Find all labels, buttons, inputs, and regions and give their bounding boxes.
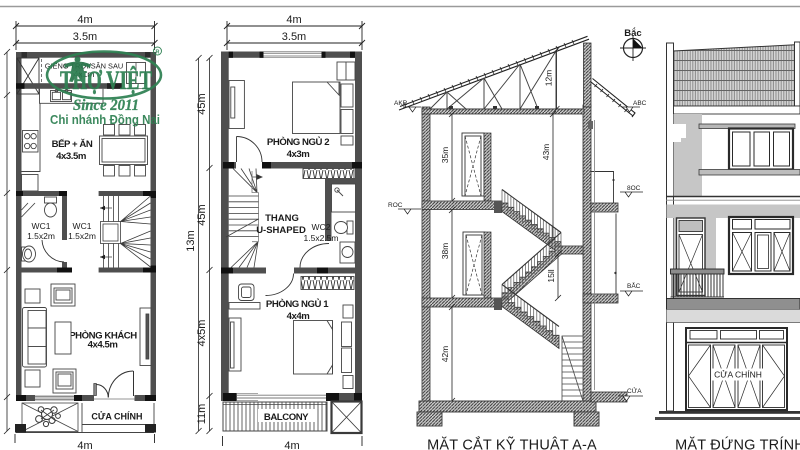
svg-text:3.5m: 3.5m [282, 31, 306, 43]
svg-text:1.5x2m: 1.5x2m [27, 231, 55, 241]
svg-text:4x4.5m: 4x4.5m [88, 340, 118, 351]
svg-text:PHÒNG NGỦ 2: PHÒNG NGỦ 2 [267, 136, 329, 148]
svg-text:4m: 4m [284, 440, 299, 450]
svg-text:BẮC: BẮC [627, 281, 641, 290]
svg-text:PHÒNG NGỦ 1: PHÒNG NGỦ 1 [266, 298, 329, 310]
svg-text:WC2: WC2 [312, 222, 331, 232]
svg-text:3.5m: 3.5m [73, 31, 97, 43]
svg-text:4x3m: 4x3m [287, 149, 310, 160]
svg-text:1.5x2.5m: 1.5x2.5m [304, 233, 339, 243]
svg-text:CỬA: CỬA [627, 386, 642, 395]
svg-text:ABC: ABC [633, 100, 647, 107]
svg-text:43m: 43m [541, 144, 551, 161]
svg-text:R: R [156, 50, 160, 56]
svg-text:4m: 4m [286, 14, 301, 26]
svg-text:15ll: 15ll [546, 269, 556, 282]
svg-text:8OC: 8OC [627, 185, 641, 192]
svg-text:13m: 13m [185, 230, 197, 251]
svg-text:BALCONY: BALCONY [264, 412, 309, 423]
svg-text:THỢ VIỆT: THỢ VIỆT [60, 65, 152, 95]
svg-text:12m: 12m [544, 70, 554, 87]
svg-text:ROC: ROC [388, 202, 403, 209]
svg-text:4m: 4m [77, 440, 92, 450]
svg-text:BẾP + ĂN: BẾP + ĂN [52, 139, 93, 150]
svg-text:MẶT CẮT KỸ THUẬT A-A: MẶT CẮT KỸ THUẬT A-A [427, 436, 597, 450]
svg-text:1.5x2m: 1.5x2m [68, 231, 96, 241]
svg-text:WC1: WC1 [73, 221, 92, 231]
svg-text:4m: 4m [77, 14, 92, 26]
svg-text:42m: 42m [440, 346, 450, 363]
svg-text:Chi nhánh Đồng Nai: Chi nhánh Đồng Nai [50, 113, 160, 127]
svg-text:11m: 11m [196, 404, 208, 425]
svg-text:WC1: WC1 [32, 221, 51, 231]
svg-text:4x3.5m: 4x3.5m [56, 151, 86, 162]
svg-text:Since 2011: Since 2011 [73, 97, 139, 114]
svg-text:45m: 45m [196, 204, 208, 225]
svg-text:AKR: AKR [394, 100, 408, 107]
svg-text:U-SHAPED: U-SHAPED [256, 225, 306, 236]
svg-text:THANG: THANG [265, 213, 299, 224]
svg-text:CỬA CHÍNH: CỬA CHÍNH [91, 411, 142, 422]
svg-text:4x5m: 4x5m [196, 320, 208, 347]
svg-text:45m: 45m [196, 93, 208, 114]
svg-text:MẶT ĐỨNG TRÍNH: MẶT ĐỨNG TRÍNH [675, 437, 800, 450]
svg-text:38m: 38m [440, 243, 450, 260]
svg-text:CỬA CHÍNH: CỬA CHÍNH [714, 369, 762, 380]
svg-text:35m: 35m [440, 147, 450, 164]
